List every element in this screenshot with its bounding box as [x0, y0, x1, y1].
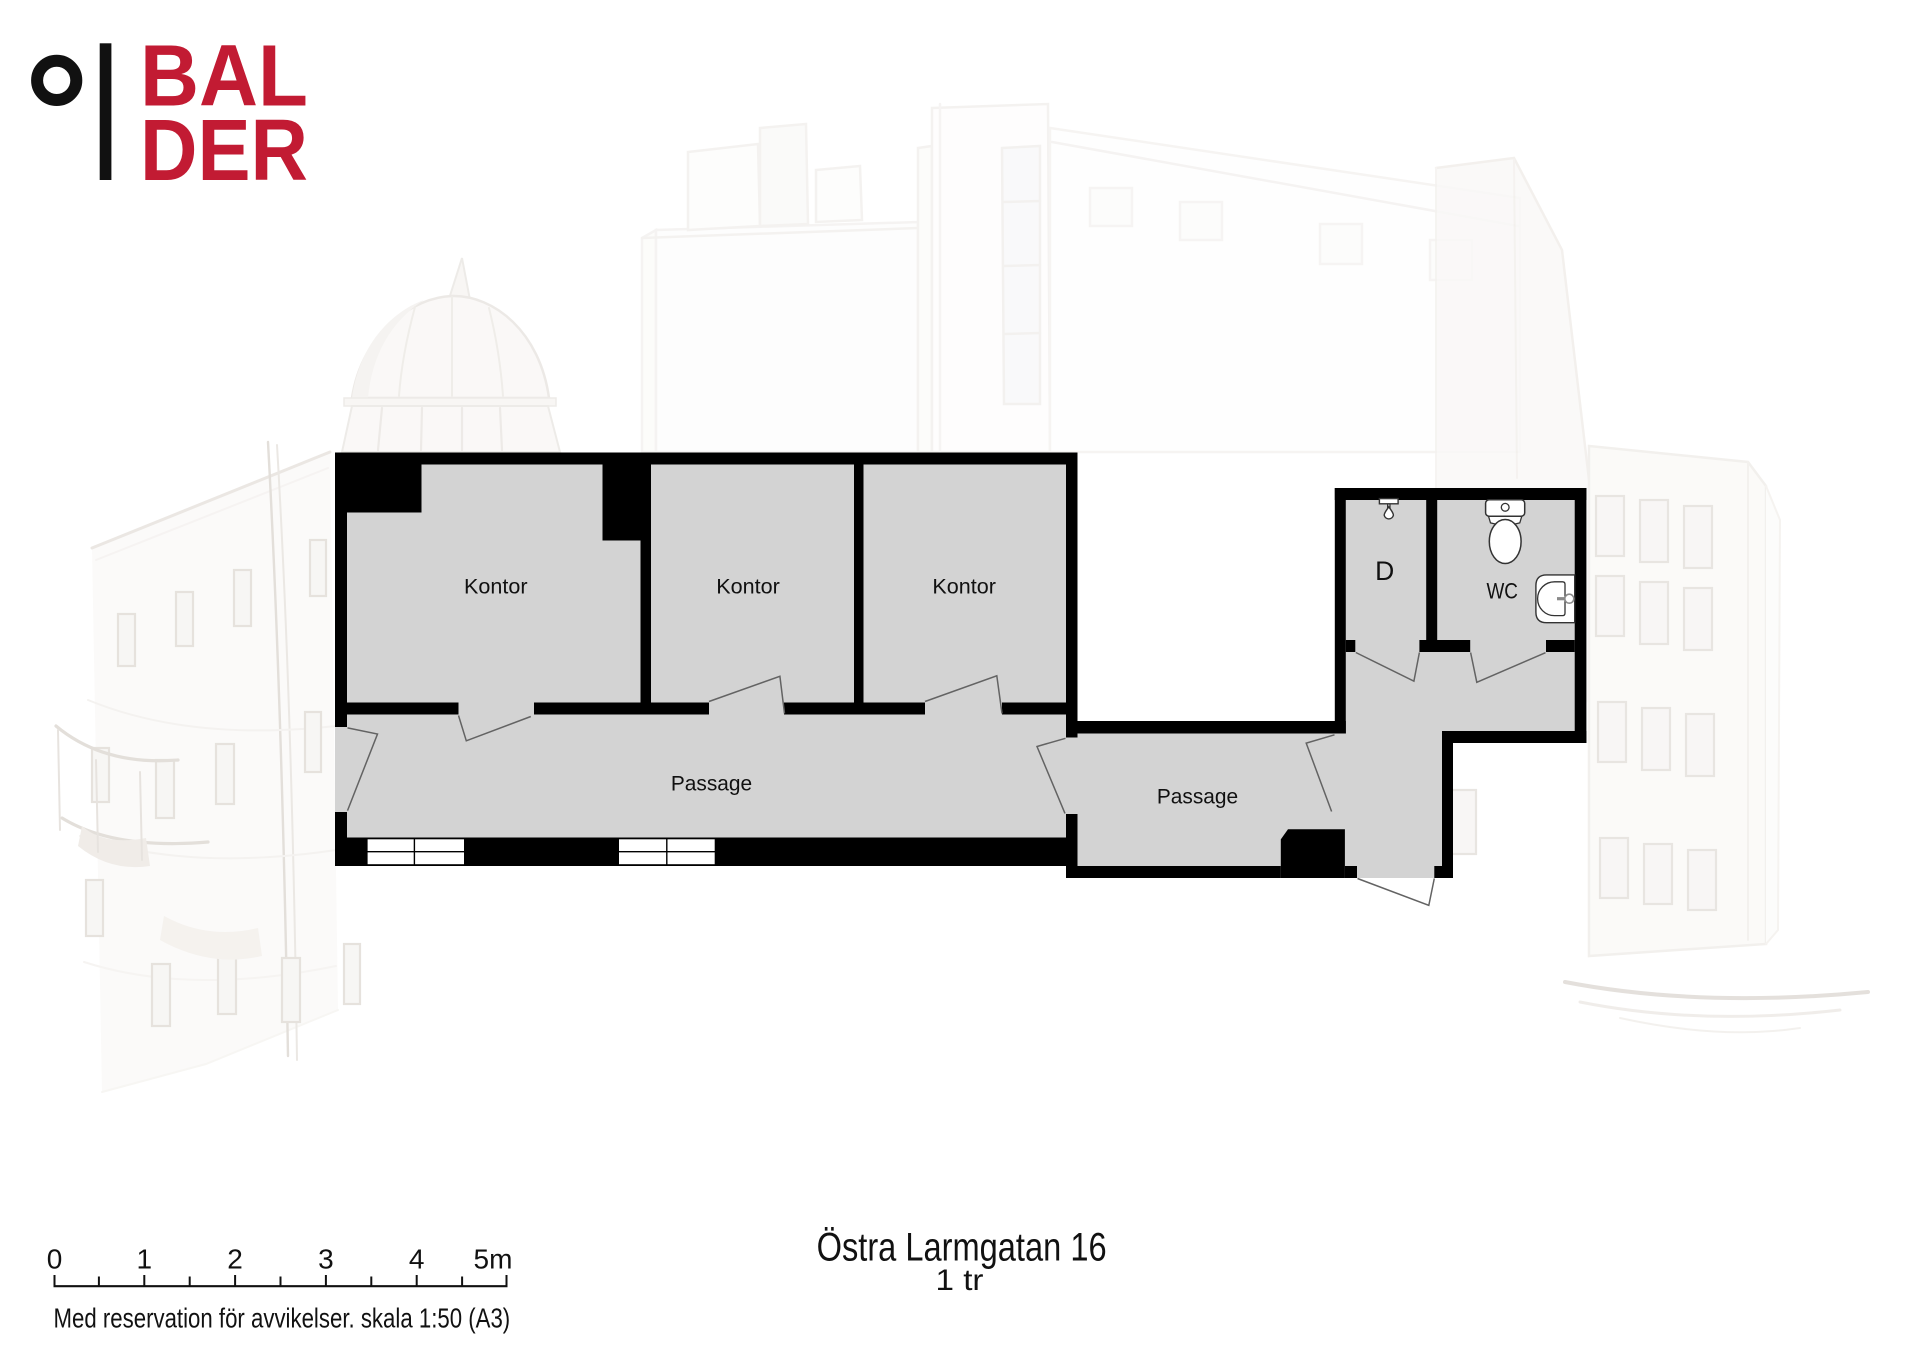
svg-text:2: 2 [227, 1244, 243, 1275]
svg-text:0: 0 [47, 1244, 63, 1275]
svg-text:Passage: Passage [671, 773, 752, 796]
svg-text:3: 3 [318, 1244, 334, 1275]
svg-text:Östra Larmgatan 16: Östra Larmgatan 16 [817, 1225, 1107, 1269]
svg-text:Kontor: Kontor [716, 576, 780, 599]
svg-text:5m: 5m [474, 1244, 513, 1275]
svg-text:D: D [1375, 556, 1394, 586]
svg-text:Kontor: Kontor [464, 576, 528, 599]
svg-text:Kontor: Kontor [932, 576, 996, 599]
svg-text:1 tr: 1 tr [936, 1264, 984, 1297]
svg-text:DER: DER [140, 102, 308, 199]
svg-text:Med reservation för avvikelser: Med reservation för avvikelser. skala 1:… [54, 1303, 511, 1334]
svg-text:Passage: Passage [1157, 786, 1238, 809]
svg-text:4: 4 [409, 1244, 425, 1275]
svg-text:1: 1 [137, 1244, 153, 1275]
svg-text:WC: WC [1486, 578, 1518, 603]
